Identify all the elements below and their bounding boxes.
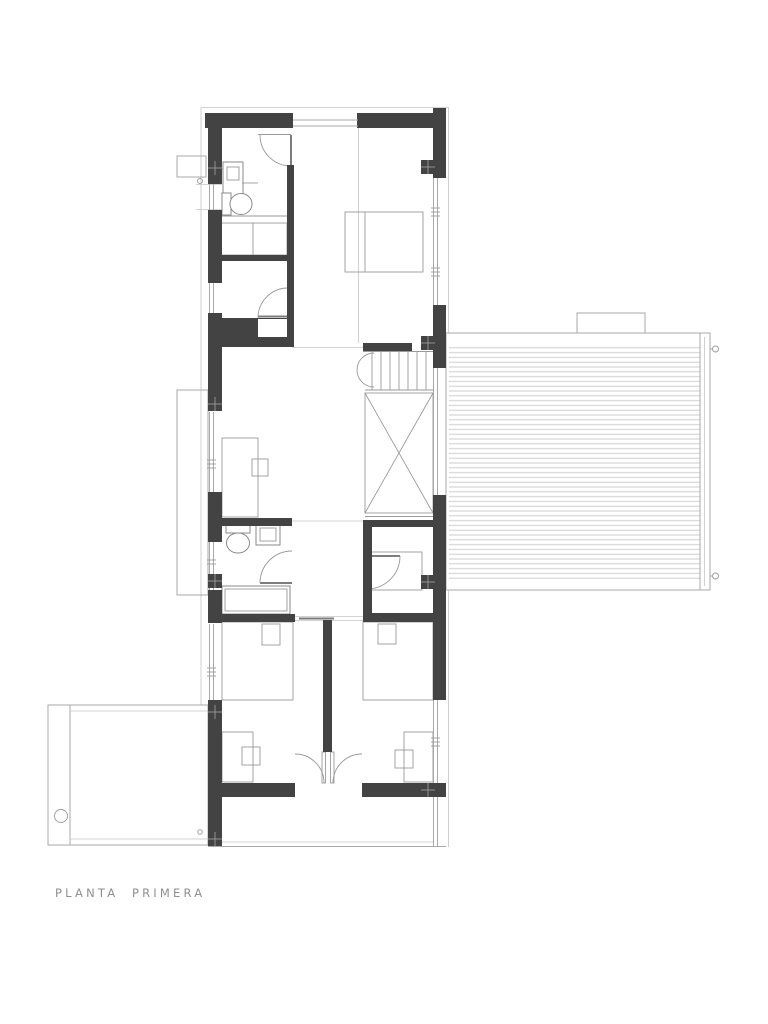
sink-middle-bathroom [256,524,280,545]
column-markers [208,160,435,846]
deck-top-notch [577,313,645,333]
desk-bottom-right [404,732,433,782]
bedroom-bottom-left [222,622,293,782]
bed-top-bedroom [345,212,423,272]
bedroom-bottom-right [363,622,433,782]
column-marker [208,574,222,588]
bathroom-middle [222,524,292,614]
desk-study [222,438,258,517]
chair-study [252,459,268,476]
bed-bottom-right [363,622,433,700]
study-area [222,438,268,517]
terrace-bottom-left [48,705,208,845]
bed-bottom-left [222,622,293,700]
column-marker [208,161,222,175]
door-closet [258,288,288,318]
toilet-top-bathroom [222,193,252,215]
bathroom-top [214,135,291,216]
column-marker [421,575,435,589]
side-terrace-left [177,390,208,595]
deck-drain-bottom [710,573,719,579]
deck-terrace [446,313,719,590]
column-marker [421,336,435,350]
door-middle-bathroom [260,551,292,583]
walls [205,108,446,846]
floor-plan-drawing [0,0,768,1024]
column-marker [421,783,435,797]
door-top-bathroom [258,135,291,167]
deck-hatch [449,344,700,580]
pillow-bottom-left [262,624,280,645]
column-marker [208,832,222,846]
column-marker [208,397,222,411]
pillow-bottom-right [378,624,396,644]
closet-top [217,216,288,318]
column-marker [421,160,435,174]
bedroom-top [345,212,423,272]
floor-plan-page: PLANTA PRIMERA [0,0,768,1024]
stair-void [365,393,433,517]
stair-direction-arc [357,353,374,387]
small-drain-circle [198,830,203,835]
interior-floor-lines [292,128,363,521]
plan-title: PLANTA PRIMERA [55,886,205,900]
staircase [357,351,433,390]
chair-bottom-left [242,747,260,765]
closet-right [367,552,422,590]
terrace-drain-circle [55,810,68,823]
desk-bottom-left [222,732,253,782]
toilet-middle-bathroom [226,524,250,553]
corridor-threshold [293,617,363,621]
deck-drain-top [710,346,719,352]
double-door-bottom [295,752,362,783]
column-marker [208,705,222,719]
bathtub-middle-bathroom [222,586,290,614]
